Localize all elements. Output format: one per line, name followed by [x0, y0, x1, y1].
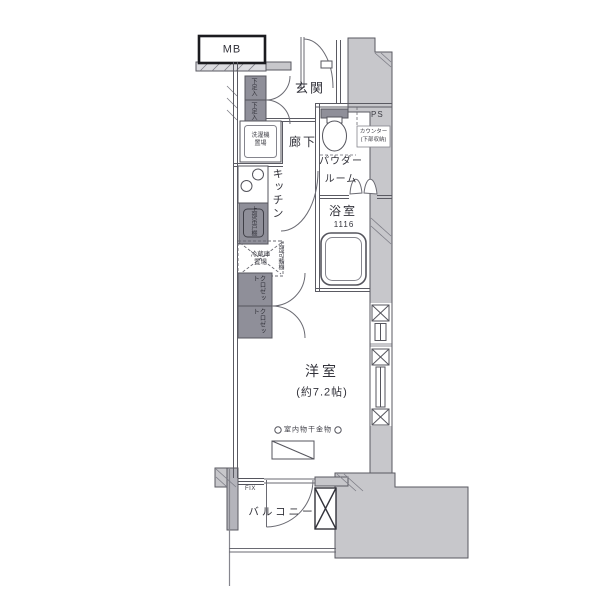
pipe-space-label: PS: [371, 111, 384, 119]
balcony-rail: [229, 549, 336, 553]
closet: [238, 273, 305, 338]
closet-label: クロゼット: [251, 275, 264, 305]
bathroom-size-label: 1116: [334, 221, 355, 229]
entrance-label: 玄関: [295, 82, 325, 95]
powder-room-label: パウダールーム: [318, 153, 364, 188]
balcony-label: バルコニー: [248, 507, 315, 518]
laundry-hardware-label: 室内物干金物: [284, 427, 332, 434]
balcony-door: [264, 479, 315, 527]
counter-note-label: カウンター(下部収納): [358, 129, 389, 144]
refrigerator-label: 冷蔵庫置場: [248, 251, 273, 268]
shoe-cabinet-label: 下足入: [250, 78, 256, 99]
mb-label: MB: [223, 45, 242, 56]
western-room-label: 洋室: [305, 364, 339, 378]
hallway-label: 廊下: [289, 136, 317, 148]
shoe-cabinet-label: 下足入: [250, 102, 256, 123]
kitchen-label: キッチン: [271, 168, 282, 230]
door-swing-arc: [281, 171, 318, 231]
door-stopper: [321, 61, 332, 68]
closet-label: クロゼット: [251, 308, 264, 338]
bathtub-icon: [321, 233, 366, 285]
kitchen-upper-cabinet-label: 上部吊戸棚: [250, 206, 256, 242]
fix-window-icon: [238, 479, 264, 485]
western-room-size-label: (約7.2帖): [296, 388, 348, 399]
hatch-box-icon: [315, 488, 336, 529]
left-bottom-pillar: [227, 468, 238, 530]
floorplan-page: MB 玄関 廊下 下足入 下足入 洗濯機置場 キッチン 上部吊戸棚 冷蔵庫置場 …: [0, 0, 600, 600]
washing-machine-label: 洗濯機置場: [250, 133, 271, 148]
right-wall-windows: [371, 303, 392, 426]
bottom-wall-stub: [315, 477, 348, 486]
toilet-icon: [321, 109, 348, 151]
bathroom-label: 浴室: [329, 205, 357, 217]
door-swing-arc: [267, 480, 314, 527]
top-wall-stub: [264, 62, 291, 70]
bottom-right-wall: [335, 473, 468, 558]
upper-shelf-label: 上部可動棚: [277, 240, 283, 274]
fix-window-label: FIX: [245, 486, 256, 492]
